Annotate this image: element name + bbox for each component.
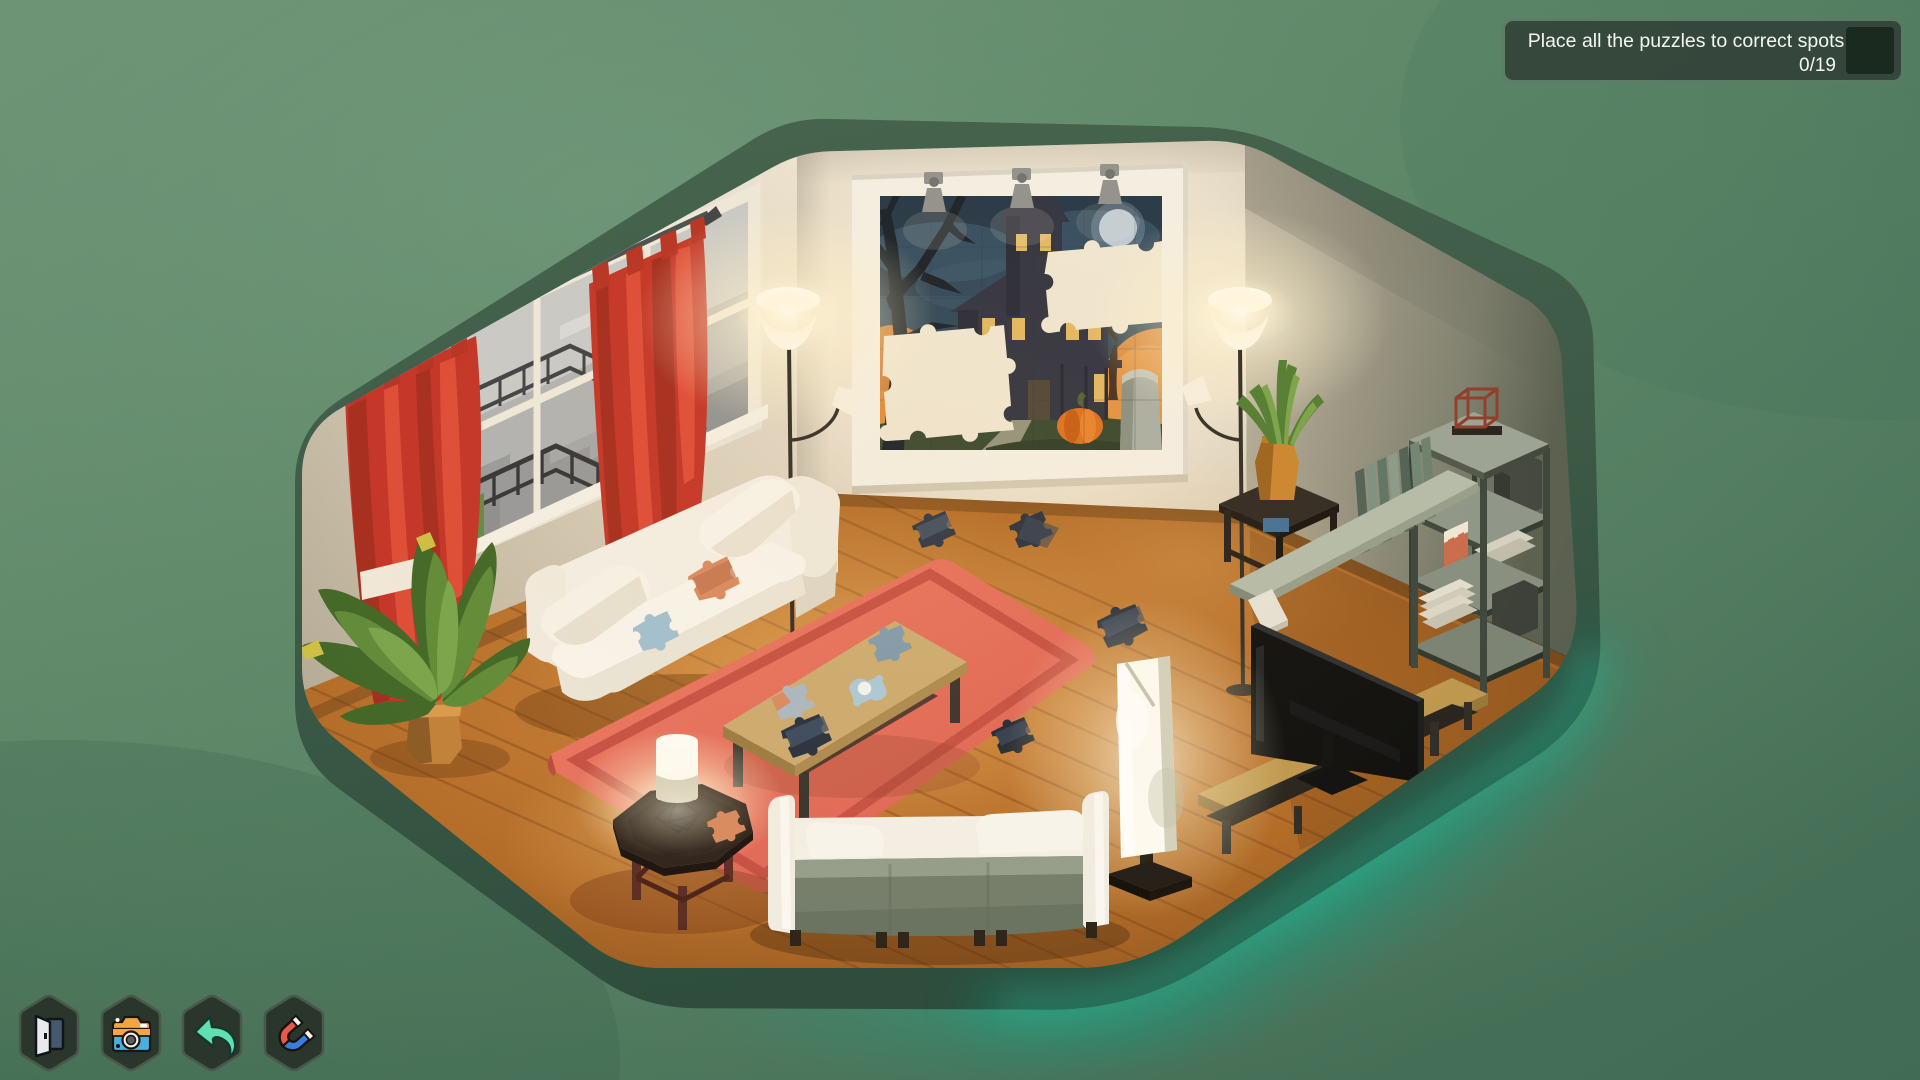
- svg-text:Place all the puzzles to corre: Place all the puzzles to correct spots: [1528, 30, 1845, 52]
- svg-text:0/19: 0/19: [1799, 55, 1836, 76]
